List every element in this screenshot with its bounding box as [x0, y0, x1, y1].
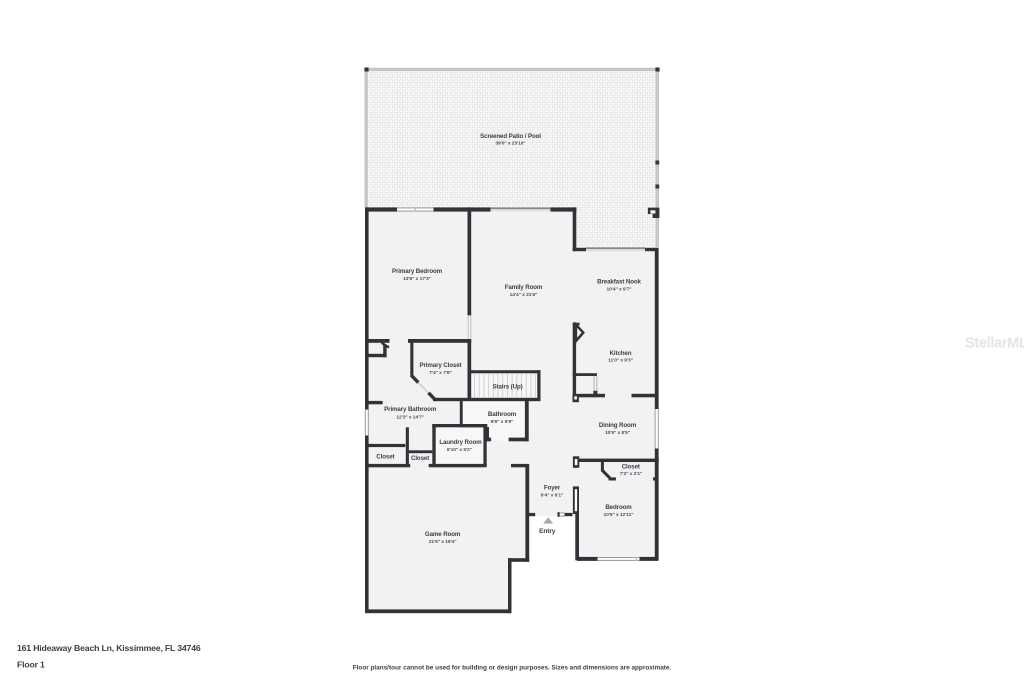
svg-text:Breakfast Nook: Breakfast Nook — [597, 279, 641, 286]
svg-text:Primary Bathroom: Primary Bathroom — [384, 406, 437, 413]
svg-text:6'4" x 6'1": 6'4" x 6'1" — [541, 493, 563, 499]
svg-text:13'6" x 17'3": 13'6" x 17'3" — [403, 276, 431, 282]
svg-text:14'4" x 21'6": 14'4" x 21'6" — [510, 292, 538, 298]
svg-text:11'0" x 9'3": 11'0" x 9'3" — [608, 358, 633, 364]
svg-text:Laundry Room: Laundry Room — [439, 439, 482, 446]
svg-text:Bedroom: Bedroom — [605, 504, 632, 511]
svg-text:Game Room: Game Room — [425, 531, 461, 538]
svg-text:Closet: Closet — [376, 453, 394, 460]
svg-text:10'4" x 9'7": 10'4" x 9'7" — [606, 286, 631, 292]
svg-text:6'10" x 5'2": 6'10" x 5'2" — [447, 447, 472, 453]
svg-text:Primary Closet: Primary Closet — [420, 362, 462, 369]
svg-text:Floor plans/tour cannot be use: Floor plans/tour cannot be used for buil… — [353, 665, 672, 672]
svg-text:Screened Patio / Pool: Screened Patio / Pool — [480, 133, 541, 140]
svg-text:7'2" x 2'1": 7'2" x 2'1" — [620, 471, 642, 477]
svg-text:Foyer: Foyer — [544, 485, 561, 492]
svg-text:Family Room: Family Room — [505, 284, 543, 291]
svg-text:Closet: Closet — [622, 464, 640, 471]
svg-text:Kitchen: Kitchen — [610, 350, 632, 357]
svg-text:Bathroom: Bathroom — [488, 411, 517, 418]
svg-text:8'9" x 5'9": 8'9" x 5'9" — [491, 419, 513, 425]
svg-text:12'3" x 14'7": 12'3" x 14'7" — [396, 414, 424, 420]
svg-text:Stairs (Up): Stairs (Up) — [493, 383, 523, 390]
svg-text:Entry: Entry — [539, 528, 556, 535]
svg-text:21'5" x 19'4": 21'5" x 19'4" — [429, 539, 457, 545]
svg-text:Primary Bedroom: Primary Bedroom — [392, 268, 443, 275]
svg-text:StellarMLS: StellarMLS — [965, 336, 1024, 352]
svg-text:161 Hideaway Beach Ln, Kissimm: 161 Hideaway Beach Ln, Kissimmee, FL 347… — [17, 643, 201, 653]
svg-text:Dining Room: Dining Room — [599, 422, 637, 429]
svg-text:39'0" x 23'10": 39'0" x 23'10" — [495, 141, 525, 147]
svg-text:Closet: Closet — [411, 455, 429, 462]
svg-text:7'4" x 7'8": 7'4" x 7'8" — [429, 370, 451, 376]
svg-text:10'5" x 12'11": 10'5" x 12'11" — [603, 512, 633, 518]
svg-text:Floor 1: Floor 1 — [17, 660, 45, 670]
svg-text:10'5" x 8'5": 10'5" x 8'5" — [605, 430, 630, 436]
